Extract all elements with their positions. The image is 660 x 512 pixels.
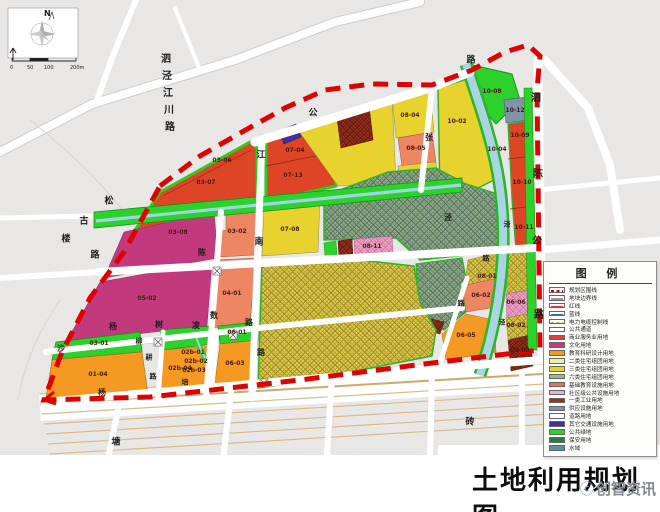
- legend-swatch: [549, 295, 565, 301]
- legend-item: 道路用地: [549, 412, 652, 420]
- legend-item: 基础教育设施用地: [549, 381, 652, 389]
- legend-item: 其它交通设施用地: [549, 420, 652, 428]
- legend-label: 公共绿地: [569, 428, 591, 436]
- legend-label: 二类住宅组团用地: [569, 357, 614, 365]
- legend-item: 教育科研设计用地: [549, 349, 652, 357]
- legend-label: 规划区围线: [569, 286, 597, 294]
- legend-label: 水域: [569, 444, 580, 452]
- scalebar-tick-label: 100: [44, 65, 54, 71]
- legend-item: 公共通道: [549, 325, 652, 333]
- legend-label: 三类住宅组团用地: [569, 365, 614, 373]
- legend-item: 六类住宅组团用地: [549, 373, 652, 381]
- legend-item: 地块边界线: [549, 294, 652, 302]
- legend-item: 三类住宅组团用地: [549, 365, 652, 373]
- legend-label: 蓝线: [569, 310, 580, 318]
- legend-item: 二类住宅组团用地: [549, 357, 652, 365]
- legend-label: 供应设施用地: [569, 404, 603, 412]
- legend-label: 文化用地: [569, 341, 591, 349]
- scalebar-tick-label: 50: [27, 65, 33, 71]
- land-use-planning-map: 03-0403-0707-0407-1308-0408-0510-0210-08…: [0, 0, 660, 512]
- compass-north-label: N: [44, 9, 51, 18]
- legend-swatch: [549, 335, 565, 341]
- legend-label: 地块边界线: [569, 294, 597, 302]
- compass: [8, 8, 78, 58]
- legend-swatch: [549, 445, 565, 451]
- legend-swatch: [549, 421, 565, 427]
- legend-swatch: [549, 398, 565, 404]
- legend-label: 商业服务业用地: [569, 333, 608, 341]
- legend-item: 公共绿地: [549, 428, 652, 436]
- scalebar-tick-label: 200m: [70, 65, 84, 71]
- legend-panel: 图 例 规划区围线地块边界线红线蓝线电力电缆控制线公共通道商业服务业用地文化用地…: [543, 261, 657, 457]
- watermark-text: 创智资讯: [596, 480, 656, 498]
- legend-item: 供应设施用地: [549, 404, 652, 412]
- legend-swatch: [549, 366, 565, 372]
- legend-label: 六类住宅组团用地: [569, 373, 614, 381]
- legend-swatch: [549, 287, 565, 293]
- legend-swatch: [549, 327, 565, 333]
- legend-label: 红线: [569, 302, 580, 310]
- legend-label: 其它交通设施用地: [569, 420, 614, 428]
- legend-item: 规划区围线: [549, 286, 652, 294]
- legend-item: 社区级公共设施用地: [549, 389, 652, 397]
- legend-label: 道路用地: [569, 412, 591, 420]
- legend-item: 保安用地: [549, 436, 652, 444]
- legend-swatch: [549, 358, 565, 364]
- legend-item: 商业服务业用地: [549, 333, 652, 341]
- watermark-logo-icon: ⓒ: [580, 482, 594, 498]
- legend-label: 一类工业用地: [569, 396, 603, 404]
- legend-item: 文化用地: [549, 341, 652, 349]
- scalebar-tick-label: 0: [10, 65, 13, 71]
- legend-title: 图 例: [549, 265, 652, 284]
- legend-swatch: [549, 342, 565, 348]
- legend-swatch: [549, 390, 565, 396]
- legend-label: 保安用地: [569, 436, 591, 444]
- legend-swatch: [549, 319, 565, 325]
- legend-swatch: [549, 350, 565, 356]
- scale-bar: 050100200m: [4, 62, 90, 74]
- legend-swatch: [549, 382, 565, 388]
- legend-label: 社区级公共设施用地: [569, 389, 619, 397]
- legend-item: 红线: [549, 302, 652, 310]
- legend-swatch: [549, 413, 565, 419]
- legend-label: 基础教育设施用地: [569, 381, 614, 389]
- legend-swatch: [549, 437, 565, 443]
- watermark: ⓒ创智资讯: [580, 478, 656, 499]
- legend-item: 电力电缆控制线: [549, 318, 652, 326]
- legend-swatch: [549, 406, 565, 412]
- legend-swatch: [549, 374, 565, 380]
- legend-item: 水域: [549, 444, 652, 452]
- legend-item: 一类工业用地: [549, 396, 652, 404]
- legend-swatch: [549, 311, 565, 317]
- legend-label: 电力电缆控制线: [569, 318, 608, 326]
- legend-swatch: [549, 303, 565, 309]
- legend-item: 蓝线: [549, 310, 652, 318]
- legend-swatch: [549, 429, 565, 435]
- legend-label: 公共通道: [569, 325, 591, 333]
- legend-label: 教育科研设计用地: [569, 349, 614, 357]
